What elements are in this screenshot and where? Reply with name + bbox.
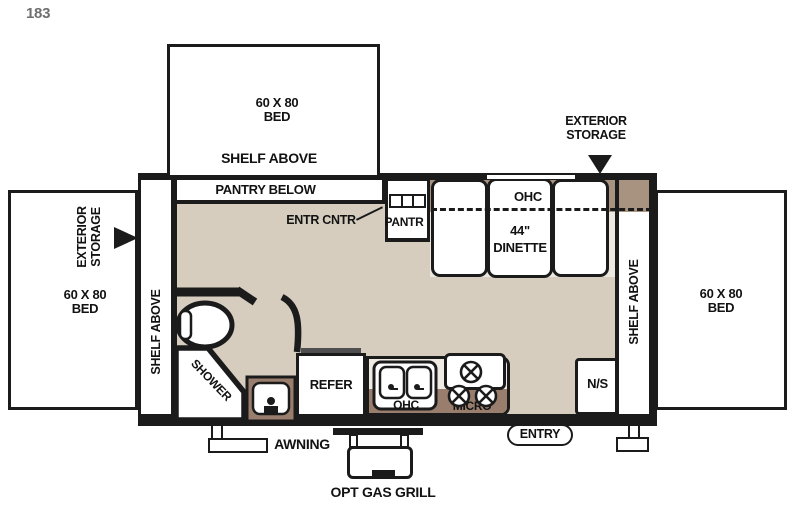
floorplan-183: 183	[0, 0, 800, 510]
burners-layer	[0, 0, 800, 510]
stove-burners	[449, 362, 496, 406]
